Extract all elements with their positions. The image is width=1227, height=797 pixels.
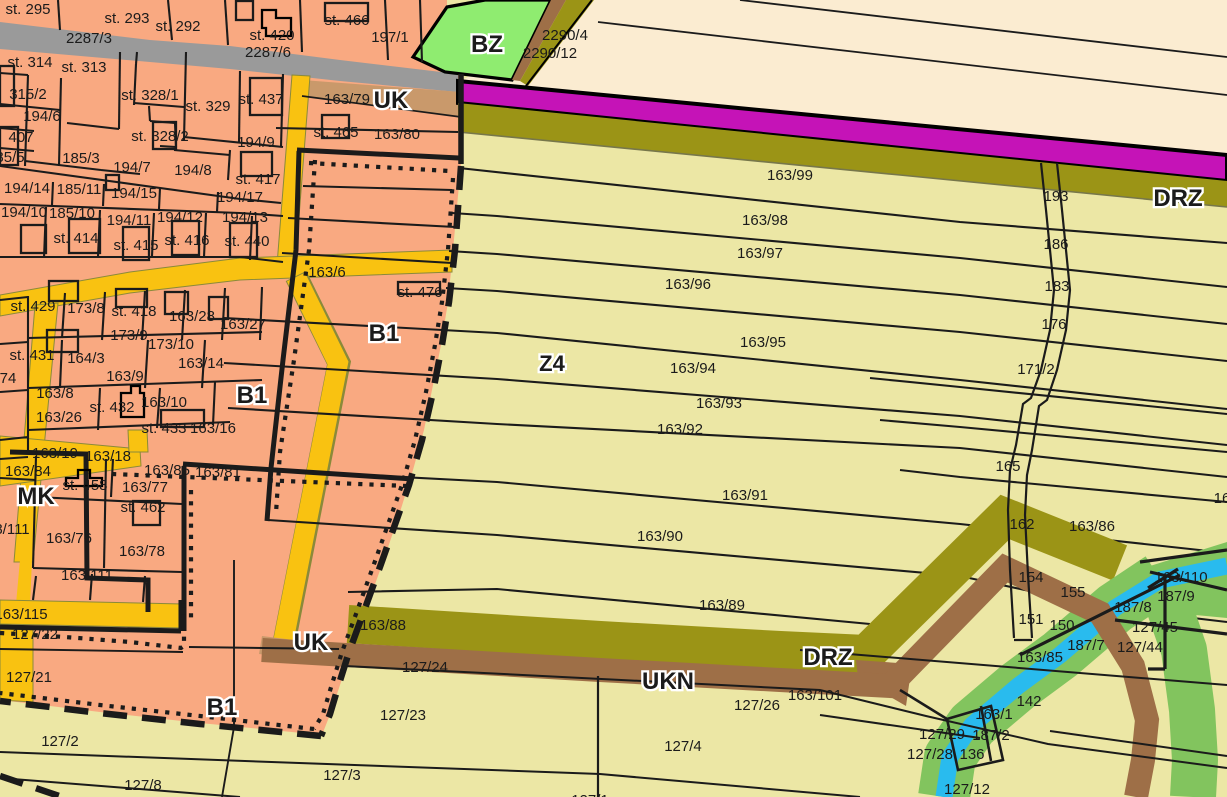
svg-text:st. 414: st. 414 [53, 230, 98, 247]
svg-text:st. 476: st. 476 [397, 284, 442, 301]
svg-text:194/14: 194/14 [4, 180, 50, 197]
svg-text:194/13: 194/13 [222, 209, 268, 226]
svg-text:2287/3: 2287/3 [66, 30, 112, 47]
svg-text:163/14: 163/14 [178, 355, 224, 372]
svg-text:163/28: 163/28 [169, 308, 215, 325]
svg-text:2290/4: 2290/4 [542, 27, 588, 44]
svg-text:127/29: 127/29 [919, 726, 965, 743]
svg-text:163/1: 163/1 [975, 706, 1013, 723]
svg-text:163/94: 163/94 [670, 360, 716, 377]
svg-text:UK: UK [374, 87, 409, 114]
svg-text:163/86: 163/86 [1069, 518, 1115, 535]
svg-text:163/76: 163/76 [46, 530, 92, 547]
svg-text:BZ: BZ [471, 31, 503, 58]
svg-text:163/16: 163/16 [190, 420, 236, 437]
svg-text:127/24: 127/24 [402, 659, 448, 676]
svg-text:2287/6: 2287/6 [245, 44, 291, 61]
svg-text:16: 16 [1214, 490, 1227, 507]
svg-text:194/12: 194/12 [157, 209, 203, 226]
svg-text:163/18: 163/18 [85, 448, 131, 465]
svg-text:127/2: 127/2 [41, 733, 79, 750]
svg-text:163/26: 163/26 [36, 409, 82, 426]
svg-text:163/91: 163/91 [722, 487, 768, 504]
svg-text:74: 74 [0, 370, 16, 387]
svg-text:163/9: 163/9 [106, 368, 144, 385]
svg-text:st. 418: st. 418 [111, 303, 156, 320]
svg-text:DRZ: DRZ [1153, 185, 1202, 212]
svg-text:187/7: 187/7 [1067, 637, 1105, 654]
svg-text:187/8: 187/8 [1114, 599, 1152, 616]
svg-text:163/115: 163/115 [0, 606, 48, 623]
svg-text:B1: B1 [237, 382, 268, 409]
svg-text:B1: B1 [369, 320, 400, 347]
svg-text:UK: UK [294, 629, 329, 656]
svg-text:194/6: 194/6 [23, 108, 61, 125]
svg-text:163/27: 163/27 [220, 316, 266, 333]
svg-text:194/7: 194/7 [113, 159, 151, 176]
svg-text:163/79: 163/79 [324, 91, 370, 108]
svg-text:127/1: 127/1 [571, 792, 609, 797]
svg-text:176: 176 [1041, 316, 1066, 333]
svg-text:155: 155 [1060, 584, 1085, 601]
svg-text:163/19: 163/19 [32, 445, 78, 462]
svg-text:183: 183 [1044, 278, 1069, 295]
svg-text:185/10: 185/10 [49, 205, 95, 222]
svg-text:163/84: 163/84 [5, 463, 51, 480]
svg-text:163/88: 163/88 [360, 617, 406, 634]
svg-text:163/8: 163/8 [36, 385, 74, 402]
svg-text:st. 328/2: st. 328/2 [131, 128, 189, 145]
svg-text:127/21: 127/21 [6, 669, 52, 686]
svg-text:185/3: 185/3 [62, 150, 100, 167]
svg-text:194/9: 194/9 [237, 134, 275, 151]
svg-text:163/85: 163/85 [1017, 649, 1063, 666]
svg-text:st. 462: st. 462 [120, 499, 165, 516]
svg-text:163/6: 163/6 [308, 264, 346, 281]
svg-text:127/8: 127/8 [124, 777, 162, 794]
svg-text:163/95: 163/95 [740, 334, 786, 351]
svg-text:B1: B1 [207, 694, 238, 721]
svg-text:194/15: 194/15 [111, 185, 157, 202]
svg-text:163/101: 163/101 [788, 687, 842, 704]
svg-text:st. 292: st. 292 [155, 18, 200, 35]
svg-text:163/80: 163/80 [374, 126, 420, 143]
svg-text:st. 416: st. 416 [164, 232, 209, 249]
svg-text:165: 165 [995, 458, 1020, 475]
svg-text:st. 293: st. 293 [104, 10, 149, 27]
svg-text:127/23: 127/23 [380, 707, 426, 724]
svg-text:171/2: 171/2 [1017, 361, 1055, 378]
svg-text:163/92: 163/92 [657, 421, 703, 438]
svg-text:8/111: 8/111 [0, 521, 30, 538]
svg-text:154: 154 [1018, 569, 1043, 586]
svg-text:st. 466: st. 466 [324, 12, 369, 29]
svg-text:st. 314: st. 314 [7, 54, 52, 71]
svg-text:127/45: 127/45 [1132, 619, 1178, 636]
svg-text:st. 432: st. 432 [89, 399, 134, 416]
svg-text:136: 136 [959, 746, 984, 763]
svg-text:127/12: 127/12 [944, 781, 990, 797]
svg-text:st. 429: st. 429 [10, 298, 55, 315]
svg-text:150: 150 [1049, 617, 1074, 634]
svg-text:194/10: 194/10 [1, 204, 47, 221]
svg-text:163/85: 163/85 [144, 462, 190, 479]
svg-text:142: 142 [1016, 693, 1041, 710]
svg-text:151: 151 [1018, 611, 1043, 628]
svg-text:127/4: 127/4 [664, 738, 702, 755]
svg-text:186: 186 [1043, 236, 1068, 253]
svg-text:st. 415: st. 415 [113, 237, 158, 254]
svg-text:163/98: 163/98 [742, 212, 788, 229]
svg-text:st. 437: st. 437 [238, 91, 283, 108]
svg-text:187/9: 187/9 [1157, 588, 1195, 605]
svg-text:163/99: 163/99 [767, 167, 813, 184]
svg-text:2290/12: 2290/12 [523, 45, 577, 62]
svg-text:185/11: 185/11 [57, 181, 102, 198]
svg-text:162: 162 [1009, 516, 1034, 533]
svg-text:st. 433: st. 433 [141, 420, 186, 437]
svg-text:187/2: 187/2 [972, 727, 1010, 744]
svg-text:st. 440: st. 440 [224, 233, 269, 250]
svg-text:315/2: 315/2 [9, 86, 47, 103]
svg-text:st. 295: st. 295 [5, 1, 50, 18]
svg-text:163/90: 163/90 [637, 528, 683, 545]
svg-text:127/28: 127/28 [907, 746, 953, 763]
svg-text:163/93: 163/93 [696, 395, 742, 412]
svg-text:194/8: 194/8 [174, 162, 212, 179]
svg-text:st. 329: st. 329 [185, 98, 230, 115]
svg-text:DRZ: DRZ [803, 644, 852, 671]
svg-text:st. 431: st. 431 [9, 347, 54, 364]
svg-text:163/81: 163/81 [195, 464, 241, 481]
svg-text:MK: MK [17, 483, 55, 510]
svg-text:163/97: 163/97 [737, 245, 783, 262]
svg-text:85/5: 85/5 [0, 149, 25, 166]
svg-text:163/78: 163/78 [119, 543, 165, 560]
svg-text:st. 313: st. 313 [61, 59, 106, 76]
svg-text:st. 420: st. 420 [249, 27, 294, 44]
svg-text:st. 458: st. 458 [62, 477, 107, 494]
svg-text:163/77: 163/77 [122, 479, 168, 496]
svg-text:194/11: 194/11 [107, 212, 152, 229]
svg-text:127/44: 127/44 [1117, 639, 1163, 656]
svg-text:173/10: 173/10 [148, 336, 194, 353]
svg-text:163/96: 163/96 [665, 276, 711, 293]
svg-text:163/10: 163/10 [141, 394, 187, 411]
svg-text:st. 465: st. 465 [313, 124, 358, 141]
svg-text:194/17: 194/17 [217, 189, 263, 206]
svg-text:127/22: 127/22 [12, 626, 58, 643]
svg-text:193: 193 [1043, 188, 1068, 205]
svg-text:173/8: 173/8 [67, 300, 105, 317]
svg-text:127/3: 127/3 [323, 767, 361, 784]
svg-text:UKN: UKN [642, 668, 694, 695]
svg-text:197/1: 197/1 [371, 29, 409, 46]
svg-text:163/89: 163/89 [699, 597, 745, 614]
svg-text:127/26: 127/26 [734, 697, 780, 714]
svg-text:163/110: 163/110 [1154, 569, 1207, 586]
svg-text:st. 417: st. 417 [235, 171, 280, 188]
svg-text:164/3: 164/3 [67, 350, 105, 367]
svg-text:163/111: 163/111 [61, 567, 113, 584]
svg-text:407: 407 [8, 129, 33, 146]
svg-text:Z4: Z4 [539, 351, 565, 376]
svg-text:173/9: 173/9 [110, 327, 148, 344]
svg-text:st. 328/1: st. 328/1 [121, 87, 179, 104]
